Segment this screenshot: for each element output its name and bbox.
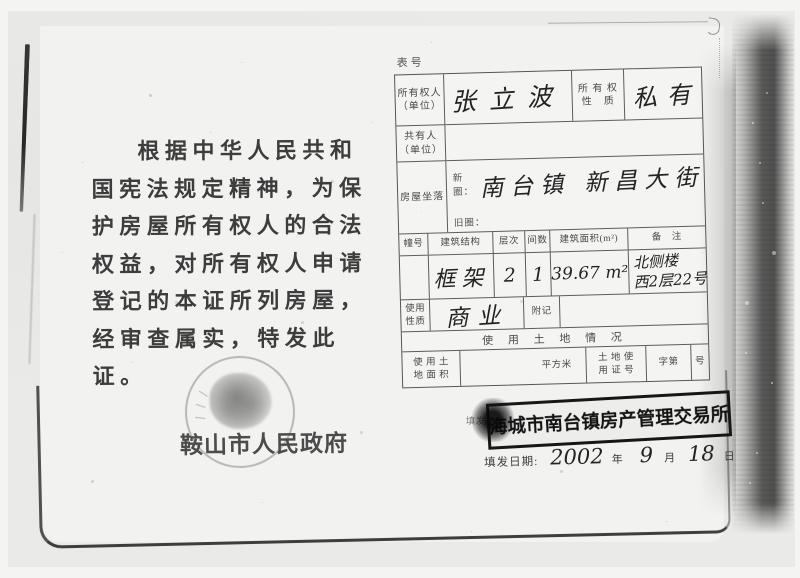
remark-line2: 西2层22号 — [633, 269, 708, 292]
issuing-authority-name: 鞍山市人民政府 — [180, 424, 348, 460]
use-value-cell: 商业 — [429, 297, 524, 330]
band-noise — [0, 0, 2, 2]
remark-header: 备 注 — [627, 226, 706, 249]
land-serial-prefix-cell: 字第 — [645, 345, 691, 381]
land-cert-label-cell: 土 地 使 用 证 号 — [585, 346, 646, 383]
scanned-certificate-page: 根据中华人民共和 国宪法规定精神，为保 护房屋所有权人的合法 权益，对所有权人申… — [0, 0, 800, 578]
land-serial-suffix-cell: 号 — [690, 344, 709, 379]
land-area-label-cell: 使 用 土 地 面 积 — [402, 351, 460, 387]
property-form: 表号 所有权人 （单位） 张立波 所 有 权 性 质 私有 — [393, 46, 718, 388]
stamp-ink-blob — [471, 397, 515, 443]
nature-value: 私有 — [631, 73, 702, 113]
rooms-cell: 1 — [525, 253, 551, 297]
floors-value: 2 — [503, 264, 516, 286]
land-area-value-cell: 平方米 — [459, 348, 586, 386]
location-new-line: 新圈： 南台镇 新昌大街 — [452, 160, 704, 201]
appendix-label-cell: 附记 — [523, 296, 560, 328]
appendix-value-cell — [559, 292, 708, 327]
building-value-row: 框架 2 1 39.67 m² 北侧楼 西2层22号 — [400, 247, 707, 299]
location-new-label: 新圈： — [453, 169, 478, 198]
declaration-line: 护房屋所有权人的合法 — [92, 206, 392, 245]
floors-header: 层次 — [492, 231, 525, 253]
location-label-cell: 房屋坐落 — [397, 161, 447, 233]
floors-cell: 2 — [493, 253, 526, 297]
declaration-line: 根据中华人民共和 — [91, 131, 391, 170]
issue-date-month: 9 — [639, 443, 653, 467]
building-no-header: 幢号 — [399, 234, 428, 256]
structure-cell: 框架 — [428, 254, 494, 299]
coowner-label: 共有人 — [404, 129, 437, 143]
nature-label-line2: 性 质 — [582, 95, 615, 109]
appendix-label: 附记 — [532, 306, 552, 319]
coowner-label-sub: （单位） — [399, 143, 443, 158]
issue-date-day: 18 — [688, 441, 715, 466]
land-area-unit: 平方米 — [542, 359, 572, 372]
owner-name-value: 张立波 — [450, 76, 566, 119]
location-old-label: 旧圈： — [454, 214, 486, 229]
location-label: 房屋坐落 — [400, 190, 444, 205]
structure-value: 框架 — [433, 259, 490, 293]
use-value: 商业 — [444, 295, 510, 333]
seal-mark — [199, 391, 208, 397]
seal-mark — [196, 404, 206, 408]
declaration-line: 国宪法规定精神，为保 — [92, 169, 392, 208]
rooms-value: 1 — [532, 263, 545, 285]
form-table: 所有权人 （单位） 张立波 所 有 权 性 质 私有 共有人 （单位） — [394, 66, 710, 388]
seal-emblem — [209, 372, 272, 430]
rooms-header: 间数 — [524, 231, 550, 253]
scan-noise — [0, 0, 1, 1]
area-cell: 39.67 m² — [550, 250, 629, 295]
ownership-nature-label-cell: 所 有 权 性 质 — [571, 70, 624, 121]
area-value: 39.67 m² — [551, 262, 629, 284]
declaration-line: 登记的本证所列房屋， — [92, 281, 392, 320]
use-label-cell: 使用 性质 — [401, 300, 430, 332]
structure-header: 建筑结构 — [427, 232, 493, 255]
owner-label-cell: 所有权人 （单位） — [395, 74, 444, 125]
location-row: 房屋坐落 新圈： 南台镇 新昌大街 旧圈： — [397, 153, 705, 233]
book-edge-shadow — [732, 14, 794, 534]
location-value-cell: 新圈： 南台镇 新昌大街 旧圈： — [445, 154, 705, 232]
land-section-title: 使 用 土 地 情 况 — [482, 328, 628, 348]
building-no-cell — [400, 256, 429, 300]
remark-cell: 北侧楼 西2层22号 — [628, 248, 707, 293]
issue-date-year: 2002 — [550, 444, 604, 469]
coowner-label-cell: 共有人 （单位） — [396, 125, 445, 161]
owner-label-sub: （单位） — [398, 99, 442, 114]
owner-row: 所有权人 （单位） 张立波 所 有 权 性 质 私有 — [395, 67, 702, 125]
remark-line1: 北侧楼 — [632, 251, 678, 272]
ownership-nature-value-cell: 私有 — [623, 67, 702, 119]
owner-value-cell: 张立波 — [443, 71, 572, 124]
nature-label-line1: 所 有 权 — [578, 81, 618, 96]
area-header: 建筑面积(m²) — [549, 228, 628, 251]
declaration-line: 权益，对所有权人申请 — [92, 244, 392, 283]
owner-label: 所有权人 — [397, 86, 441, 101]
day-unit: 日 — [724, 448, 735, 464]
seal-mark — [195, 417, 205, 419]
location-new-value: 南台镇 新昌大街 — [479, 158, 705, 204]
month-unit: 月 — [664, 449, 675, 465]
coowner-value-cell — [444, 118, 703, 160]
location-old-line: 旧圈： — [454, 214, 486, 229]
year-unit: 年 — [612, 451, 623, 467]
issue-date-label: 填发日期: — [484, 453, 539, 470]
